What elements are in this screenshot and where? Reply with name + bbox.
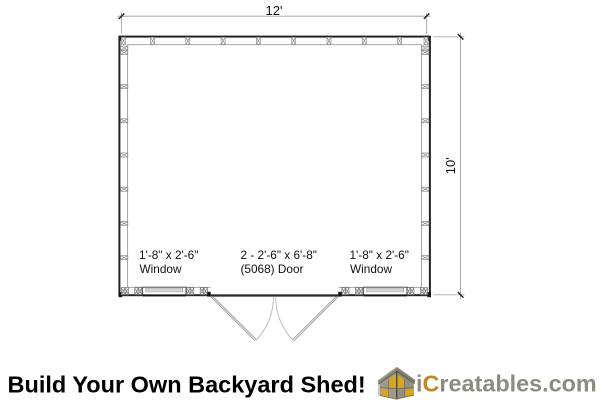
svg-text:Window: Window xyxy=(140,262,182,276)
svg-text:10': 10' xyxy=(443,157,458,174)
svg-text:1'-8" x 2'-6": 1'-8" x 2'-6" xyxy=(139,248,198,262)
svg-text:(5068) Door: (5068) Door xyxy=(241,262,304,276)
svg-text:1'-8" x 2'-6": 1'-8" x 2'-6" xyxy=(350,248,409,262)
svg-text:iCreatables.com: iCreatables.com xyxy=(416,371,597,397)
svg-text:Window: Window xyxy=(350,262,392,276)
svg-text:Build Your Own Backyard Shed!: Build Your Own Backyard Shed! xyxy=(8,372,366,398)
svg-text:12': 12' xyxy=(266,3,283,18)
svg-text:2 - 2'-6" x 6'-8": 2 - 2'-6" x 6'-8" xyxy=(241,248,317,262)
